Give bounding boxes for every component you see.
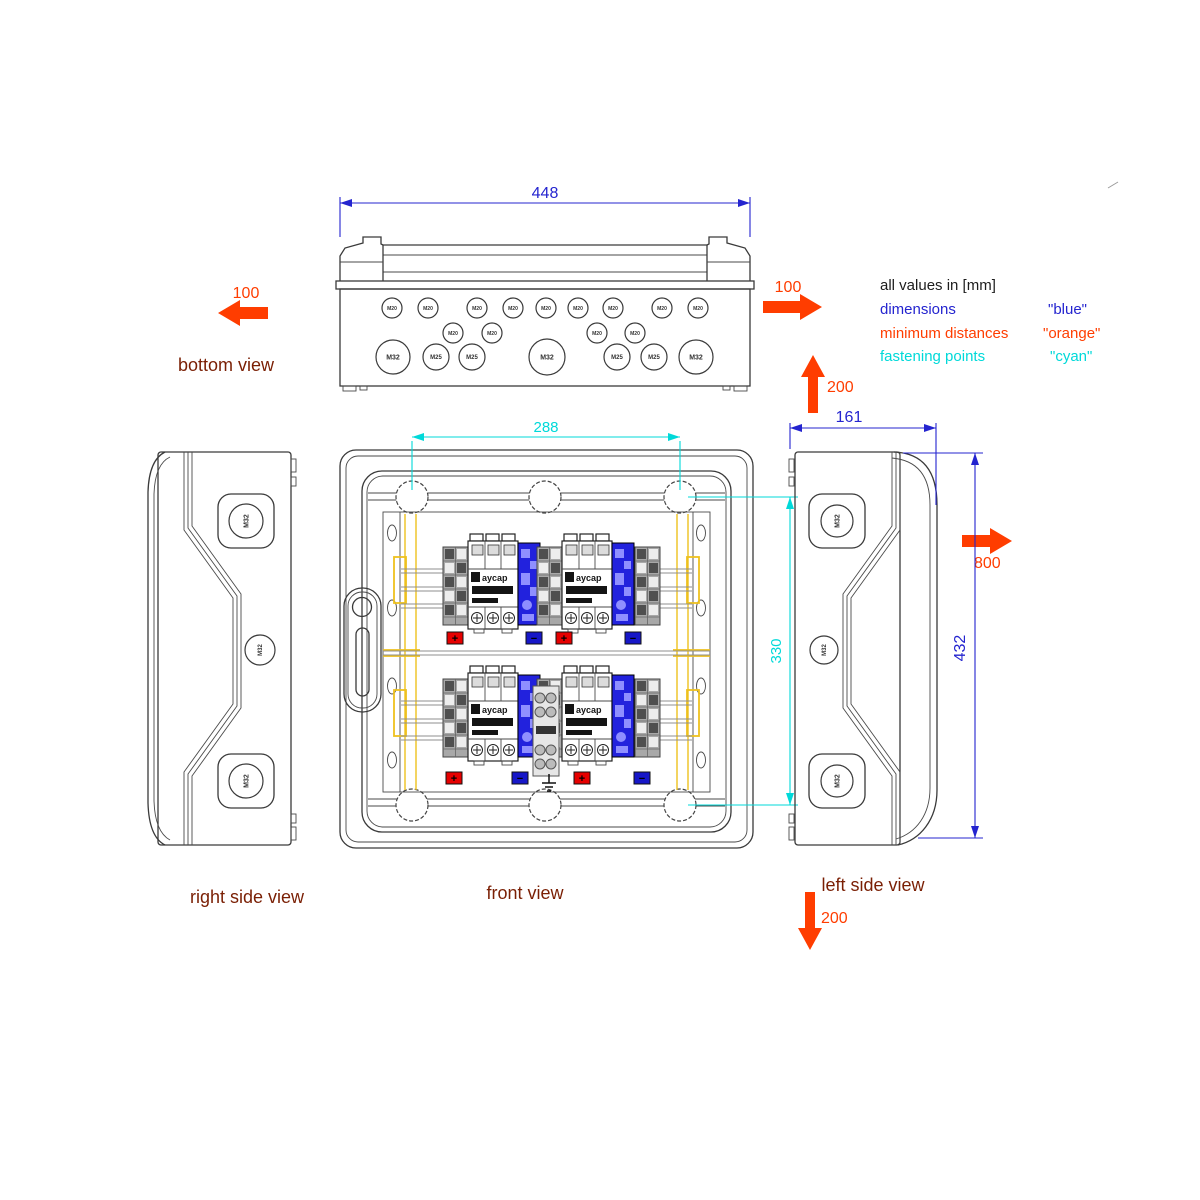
dim-448-text: 448 [532, 185, 559, 202]
svg-text:M20: M20 [508, 306, 518, 312]
svg-text:M32: M32 [835, 514, 842, 528]
svg-text:M20: M20 [472, 306, 482, 312]
cable-gland: M20 [536, 298, 556, 318]
dim-161-text: 161 [836, 409, 863, 426]
cable-gland: M32 [810, 636, 838, 664]
svg-text:M32: M32 [822, 644, 828, 656]
cable-gland: M25 [423, 344, 449, 370]
svg-text:M20: M20 [541, 306, 551, 312]
arrow-down-icon [798, 892, 822, 950]
svg-text:M32: M32 [835, 774, 842, 788]
cable-gland: M20 [688, 298, 708, 318]
cable-gland: M20 [467, 298, 487, 318]
legend-dimensions-label: dimensions [880, 301, 956, 318]
svg-text:M20: M20 [693, 306, 703, 312]
svg-text:M20: M20 [423, 306, 433, 312]
cable-gland: M20 [382, 298, 402, 318]
svg-text:M32: M32 [258, 644, 264, 656]
svg-text:M20: M20 [573, 306, 583, 312]
min-distance-below: 200 [798, 892, 848, 950]
mounting-clips [291, 459, 296, 840]
cable-gland: M20 [503, 298, 523, 318]
min-distance-side: 800 [962, 528, 1012, 572]
legend: all values in [mm] dimensions "blue" min… [880, 277, 1100, 365]
dim-288-text: 288 [533, 419, 558, 436]
legend-min-distances-label: minimum distances [880, 325, 1008, 342]
bottom-view: 448 M20M20M20M20M20M20M20M20M20M20M20M20… [178, 185, 754, 391]
cable-gland: M20 [587, 323, 607, 343]
bottom-view-label: bottom view [178, 355, 275, 375]
cable-gland: M20 [603, 298, 623, 318]
dim-fastening-width: 288 [412, 419, 680, 490]
cable-gland: M20 [443, 323, 463, 343]
spd-row-1 [443, 534, 660, 633]
min-dist-below-text: 200 [821, 910, 848, 927]
svg-text:M32: M32 [689, 355, 703, 362]
svg-text:+: + [451, 773, 457, 785]
dim-overall-width: 448 [340, 185, 750, 237]
minus-marker: − [512, 772, 528, 785]
drawing-canvas: aycap [0, 0, 1200, 1200]
legend-fastening-label: fastening points [880, 348, 985, 365]
min-dist-side-text: 800 [974, 555, 1001, 572]
plus-marker: + [447, 632, 463, 645]
min-dist-above-text: 200 [827, 379, 854, 396]
svg-text:M20: M20 [387, 306, 397, 312]
legend-fastening-value: "cyan" [1050, 348, 1092, 365]
svg-text:M20: M20 [608, 306, 618, 312]
svg-text:M25: M25 [430, 355, 442, 361]
minus-marker: − [634, 772, 650, 785]
cable-gland: M20 [482, 323, 502, 343]
svg-text:−: − [531, 633, 537, 645]
left-side-view: M32M32M32 left side view [789, 452, 937, 895]
arrow-up-icon [801, 355, 825, 413]
cable-gland: M25 [641, 344, 667, 370]
corner-mark [1108, 182, 1118, 188]
svg-text:M20: M20 [630, 331, 640, 337]
cable-gland: M32 [229, 504, 263, 538]
svg-text:M32: M32 [540, 355, 554, 362]
minus-marker: − [625, 632, 641, 645]
cable-gland: M32 [529, 339, 565, 375]
svg-text:M32: M32 [244, 514, 251, 528]
svg-text:M32: M32 [244, 774, 251, 788]
svg-text:M20: M20 [448, 331, 458, 337]
cable-gland: M20 [568, 298, 588, 318]
min-dist-right-text: 100 [775, 279, 802, 296]
svg-text:+: + [579, 773, 585, 785]
cable-gland: M32 [245, 635, 275, 665]
svg-text:M20: M20 [657, 306, 667, 312]
cable-gland: M32 [679, 340, 713, 374]
right-side-view: M32M32M32 right side view [148, 452, 305, 907]
min-distance-right: 100 [763, 279, 822, 320]
cable-gland: M25 [459, 344, 485, 370]
svg-text:−: − [517, 773, 523, 785]
dim-overall-height: 432 [903, 453, 983, 838]
min-distance-above: 200 [801, 355, 854, 413]
cable-gland: M20 [652, 298, 672, 318]
plus-marker: + [556, 632, 572, 645]
cable-gland: M32 [229, 764, 263, 798]
bottom-view-flange [336, 281, 754, 289]
svg-text:−: − [639, 773, 645, 785]
legend-title: all values in [mm] [880, 277, 996, 294]
svg-text:+: + [561, 633, 567, 645]
minus-marker: − [526, 632, 542, 645]
min-dist-left-text: 100 [233, 285, 260, 302]
dim-432-text: 432 [952, 635, 969, 662]
left-side-view-label: left side view [821, 875, 925, 895]
right-side-view-label: right side view [190, 887, 305, 907]
svg-text:M25: M25 [648, 355, 660, 361]
front-view-label: front view [486, 883, 564, 903]
cable-gland: M32 [821, 765, 853, 797]
svg-text:M25: M25 [466, 355, 478, 361]
min-distance-left: 100 [218, 285, 268, 326]
cable-gland: M32 [821, 505, 853, 537]
arrow-right-800-icon [962, 528, 1012, 554]
bottom-view-feet [343, 386, 747, 391]
dim-330-text: 330 [768, 638, 785, 663]
svg-text:−: − [630, 633, 636, 645]
cable-gland: M25 [604, 344, 630, 370]
legend-dimensions-value: "blue" [1048, 301, 1087, 318]
svg-text:M25: M25 [611, 355, 623, 361]
cable-gland: M20 [418, 298, 438, 318]
bottom-view-lid [340, 237, 750, 281]
arrow-right-icon [763, 294, 822, 320]
plus-marker: + [446, 772, 462, 785]
bottom-view-glands: M20M20M20M20M20M20M20M20M20M20M20M20M20M… [376, 298, 713, 375]
cable-gland: M32 [376, 340, 410, 374]
plus-marker: + [574, 772, 590, 785]
svg-text:M32: M32 [386, 355, 400, 362]
legend-min-distances-value: "orange" [1043, 325, 1100, 342]
arrow-left-icon [218, 300, 268, 326]
cable-gland: M20 [625, 323, 645, 343]
svg-text:M20: M20 [592, 331, 602, 337]
ground-terminal-block [533, 686, 559, 776]
svg-text:M20: M20 [487, 331, 497, 337]
svg-text:+: + [452, 633, 458, 645]
technical-drawing: aycap [0, 0, 1200, 1200]
front-view: +−+−+−+− front view [340, 450, 753, 903]
